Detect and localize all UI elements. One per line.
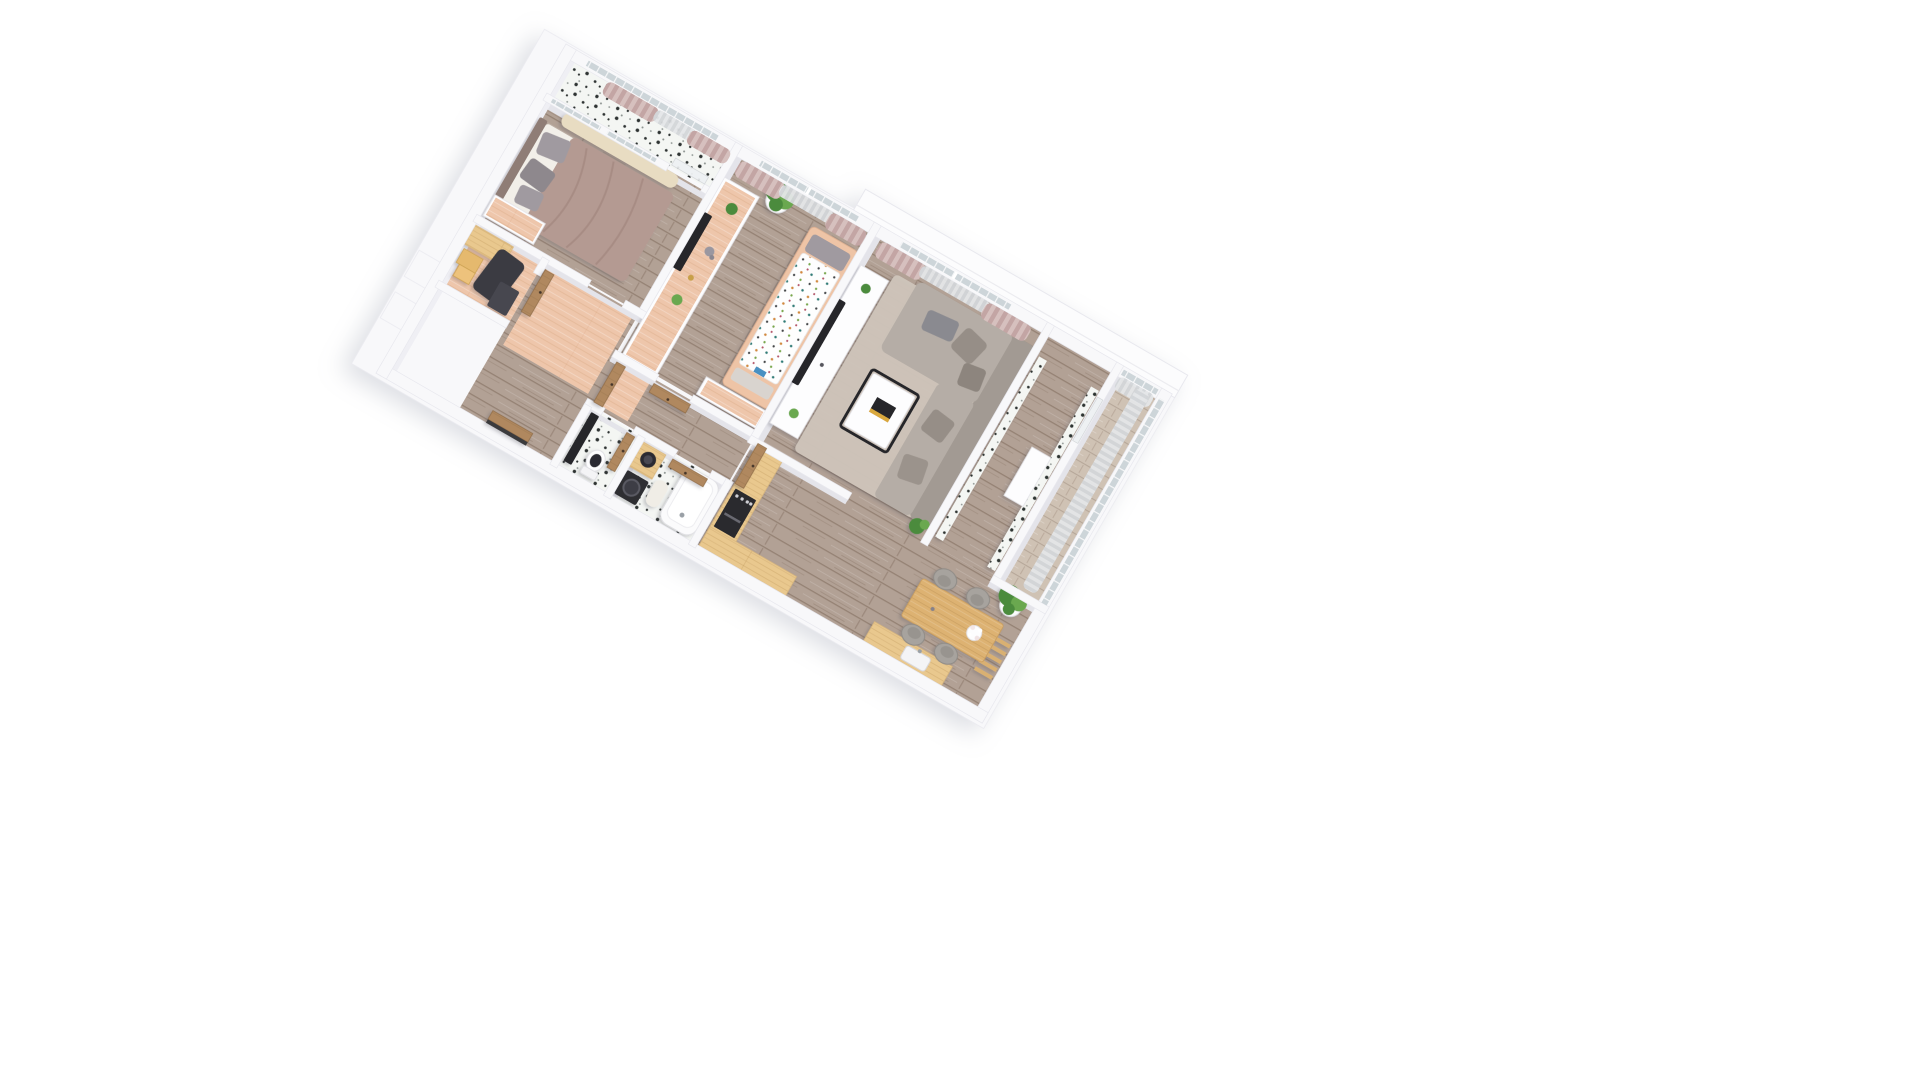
scene-canvas	[0, 0, 1920, 1080]
apartment-3d-plan	[351, 10, 1187, 728]
